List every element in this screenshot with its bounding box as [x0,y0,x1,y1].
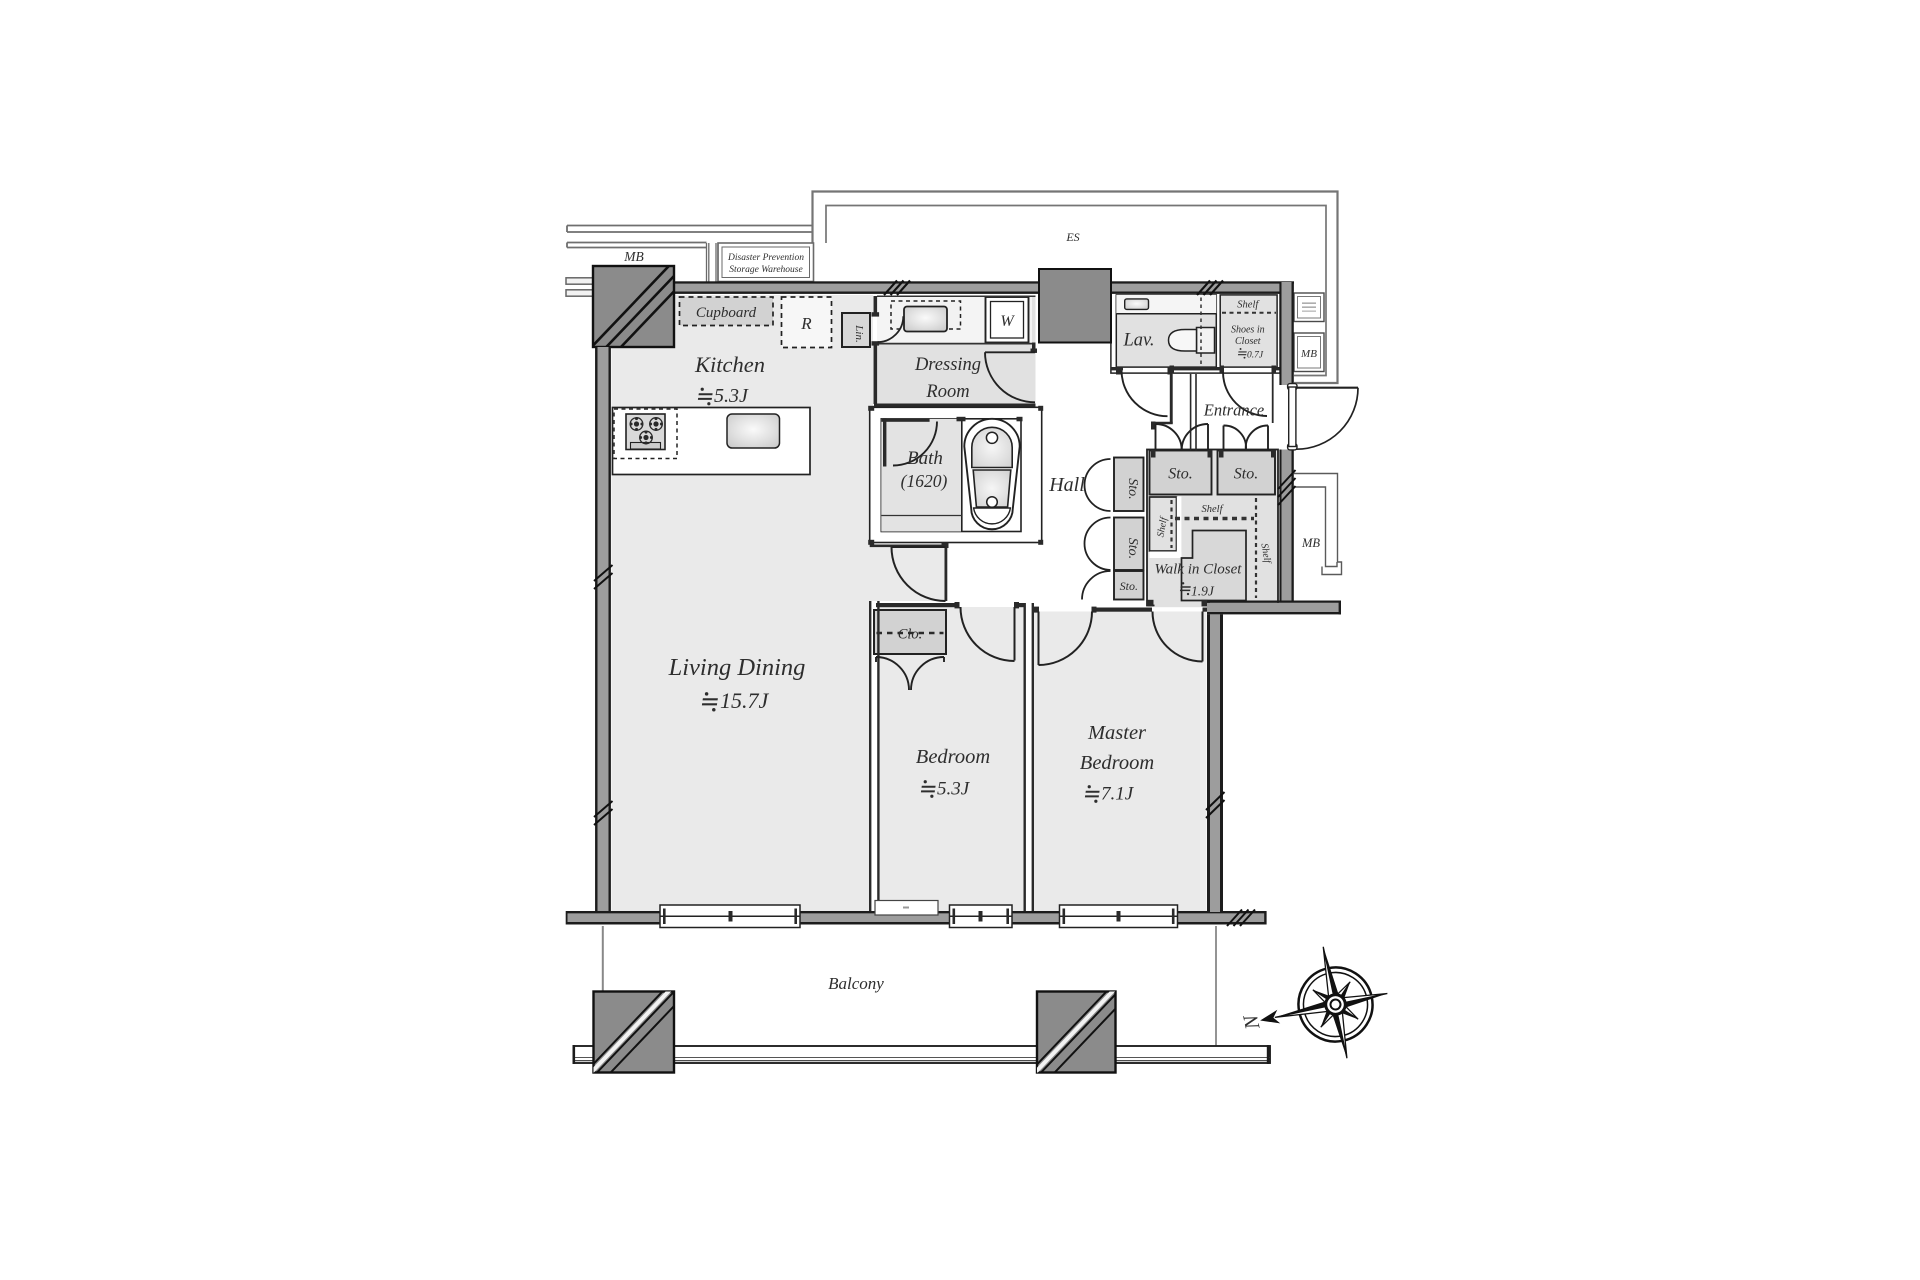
svg-text:ES: ES [1065,230,1079,244]
svg-text:Shelf: Shelf [1202,504,1225,515]
svg-text:1.9J: 1.9J [1191,584,1215,599]
svg-text:Sto.: Sto. [1125,538,1140,559]
svg-text:15.7J: 15.7J [720,688,770,713]
svg-text:Shelf: Shelf [1237,300,1260,311]
svg-text:Sto.: Sto. [1125,478,1140,499]
svg-text:R: R [800,314,812,333]
svg-text:W: W [1000,313,1015,330]
svg-text:Entrance: Entrance [1203,401,1264,420]
svg-text:Balcony: Balcony [828,974,884,993]
svg-text:Room: Room [925,382,969,402]
svg-text:Disaster Prevention: Disaster Prevention [727,253,804,263]
svg-text:Closet: Closet [1235,336,1261,347]
svg-text:Cupboard: Cupboard [696,305,757,321]
svg-text:7.1J: 7.1J [1101,784,1135,805]
svg-text:Sto.: Sto. [1234,466,1258,483]
svg-text:Kitchen: Kitchen [694,352,765,377]
svg-text:0.7J: 0.7J [1247,351,1264,361]
svg-text:Dressing: Dressing [914,355,981,375]
svg-text:Hall: Hall [1048,474,1085,496]
svg-text:Sto.: Sto. [1120,579,1138,593]
svg-text:Shoes in: Shoes in [1231,325,1265,336]
svg-text:MB: MB [1300,348,1317,360]
svg-text:Bedroom: Bedroom [1080,752,1154,774]
svg-text:MB: MB [623,249,644,264]
svg-text:Clo.: Clo. [898,627,923,643]
svg-text:Bath: Bath [907,448,943,469]
svg-text:Master: Master [1087,722,1147,744]
svg-text:Storage Warehouse: Storage Warehouse [729,265,802,275]
svg-text:Living Dining: Living Dining [668,654,806,681]
svg-text:5.3J: 5.3J [714,385,749,407]
svg-text:Lav.: Lav. [1122,331,1154,351]
svg-text:MB: MB [1301,536,1320,550]
svg-text:5.3J: 5.3J [937,779,971,800]
svg-text:Bedroom: Bedroom [916,746,990,768]
svg-text:(1620): (1620) [901,471,948,491]
svg-text:Walk in Closet: Walk in Closet [1155,562,1243,578]
svg-text:Sto.: Sto. [1168,466,1192,483]
svg-text:Lin.: Lin. [853,324,865,342]
